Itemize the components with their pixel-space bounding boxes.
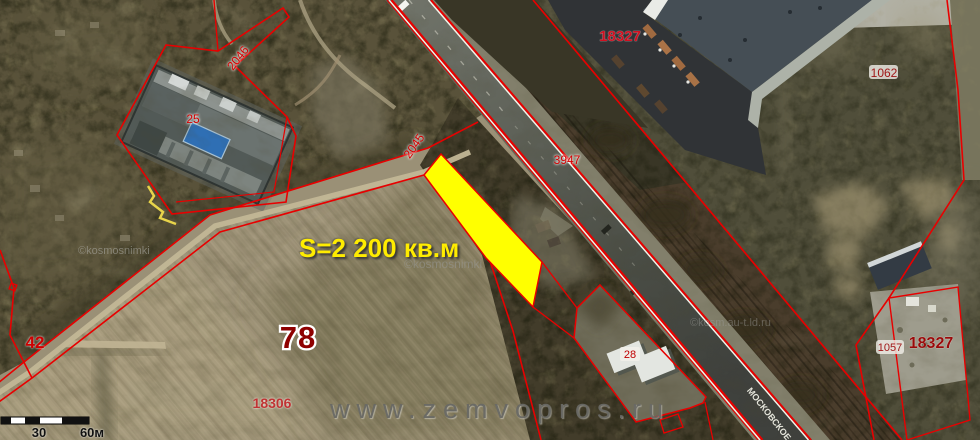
svg-text:28: 28 xyxy=(624,349,636,361)
svg-text:3947: 3947 xyxy=(554,153,581,167)
svg-text:1057: 1057 xyxy=(878,342,902,354)
svg-text:©kosmosnimki: ©kosmosnimki xyxy=(404,257,482,271)
svg-text:30: 30 xyxy=(32,425,46,440)
svg-text:©kosmosnimki: ©kosmosnimki xyxy=(78,245,150,257)
svg-text:18327: 18327 xyxy=(599,28,641,45)
svg-text:1062: 1062 xyxy=(871,66,898,80)
svg-text:42: 42 xyxy=(26,333,45,352)
svg-text:18327: 18327 xyxy=(909,335,954,352)
svg-text:©kosm.au-t.ld.ru: ©kosm.au-t.ld.ru xyxy=(690,317,771,329)
svg-text:60м: 60м xyxy=(80,425,104,440)
svg-text:www.zemvopros.ru: www.zemvopros.ru xyxy=(329,394,670,424)
svg-text:18306: 18306 xyxy=(253,395,292,411)
svg-text:78: 78 xyxy=(280,320,316,355)
svg-text:25: 25 xyxy=(186,112,200,126)
